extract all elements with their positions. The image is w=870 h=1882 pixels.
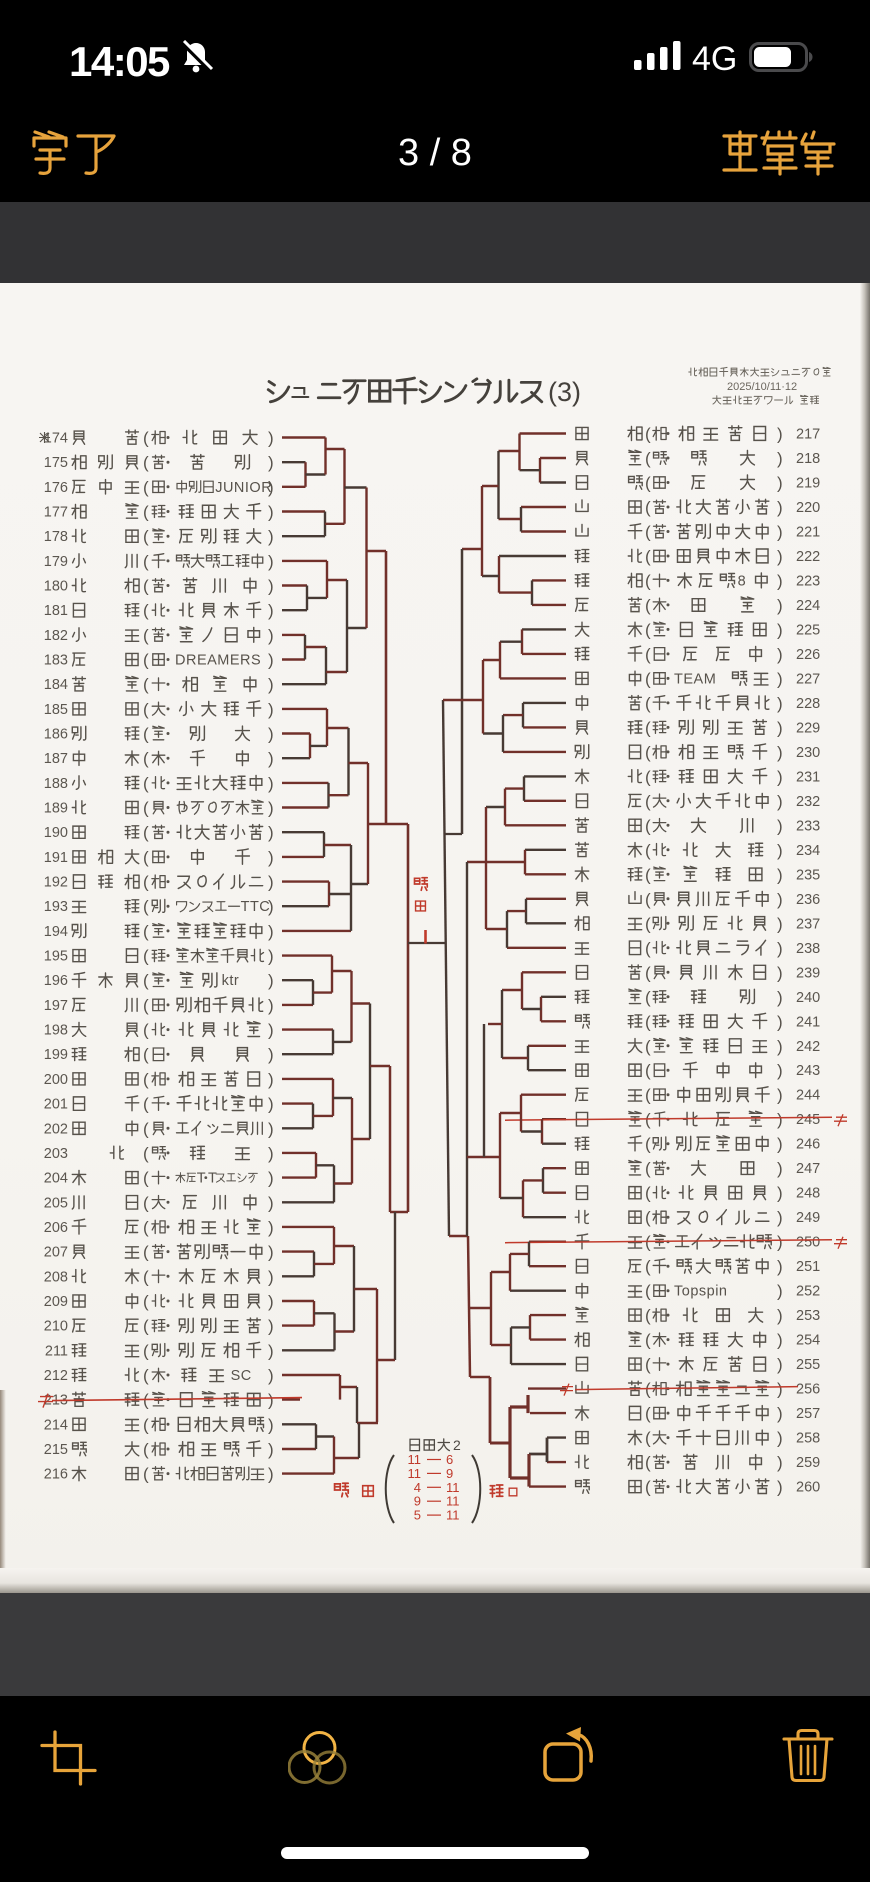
svg-text:(: ( [143,749,149,768]
svg-text:175: 175 [44,455,68,471]
svg-text:): ) [777,1086,783,1105]
svg-text:(: ( [645,914,651,933]
svg-text:): ) [777,1037,783,1056]
svg-text:174: 174 [44,431,68,447]
svg-text:(: ( [645,571,651,590]
svg-text:(: ( [143,1218,149,1237]
svg-text:238: 238 [796,941,820,957]
svg-text:ktr: ktr [222,973,240,989]
svg-text:198: 198 [44,1023,68,1039]
svg-text:11: 11 [446,1480,460,1495]
svg-text:(: ( [645,1037,651,1056]
svg-text:): ) [268,651,274,670]
svg-text:179: 179 [44,554,68,570]
svg-text:221: 221 [796,525,820,541]
svg-text:): ) [777,449,783,468]
svg-text:(: ( [143,922,149,941]
svg-text:): ) [268,1317,274,1336]
svg-text:): ) [777,1135,783,1154]
svg-text:231: 231 [796,769,820,785]
svg-text:(: ( [645,1012,651,1031]
svg-text:): ) [777,767,783,786]
svg-text:(: ( [143,429,149,448]
svg-text:T: T [197,1171,206,1187]
svg-text:(: ( [645,1355,651,1374]
svg-text:209: 209 [44,1294,68,1310]
svg-text:192: 192 [44,875,68,891]
svg-text:208: 208 [44,1269,68,1285]
svg-text:(: ( [143,1144,149,1163]
svg-text:(: ( [645,1184,651,1203]
svg-text:DREAMERS: DREAMERS [175,653,261,669]
svg-text:(: ( [143,552,149,571]
svg-text:): ) [777,865,783,884]
svg-text:): ) [777,743,783,762]
svg-text:): ) [268,626,274,645]
svg-text:226: 226 [796,647,820,663]
svg-text:(: ( [143,651,149,670]
svg-text:): ) [268,1193,274,1212]
svg-text:Topspin: Topspin [674,1284,727,1300]
svg-text:215: 215 [44,1442,68,1458]
svg-text:227: 227 [796,671,820,687]
svg-text:187: 187 [44,751,68,767]
svg-text:(: ( [645,620,651,639]
svg-text:): ) [268,1218,274,1237]
svg-text:243: 243 [796,1063,820,1079]
svg-text:): ) [268,749,274,768]
svg-text:(: ( [143,626,149,645]
svg-text:(: ( [645,1429,651,1448]
svg-text:(: ( [143,947,149,966]
svg-text:(: ( [143,1095,149,1114]
svg-text:(: ( [143,1465,149,1484]
svg-text:191: 191 [44,850,68,866]
svg-text:248: 248 [796,1186,820,1202]
svg-text:(: ( [645,1257,651,1276]
svg-text:(: ( [143,1267,149,1286]
svg-text:252: 252 [796,1284,820,1300]
svg-text:): ) [268,947,274,966]
svg-text:): ) [777,1478,783,1497]
svg-text:223: 223 [796,573,820,589]
svg-text:): ) [777,1184,783,1203]
svg-text:177: 177 [44,505,68,521]
svg-text:(: ( [143,601,149,620]
svg-text:(: ( [143,1119,149,1138]
svg-text:190: 190 [44,825,68,841]
svg-text:197: 197 [44,998,68,1014]
svg-text:): ) [777,571,783,590]
svg-text:195: 195 [44,949,68,965]
svg-text:245: 245 [796,1112,820,1128]
svg-text:(: ( [143,996,149,1015]
svg-text:): ) [777,1355,783,1374]
svg-text:5: 5 [414,1508,421,1523]
svg-text:(: ( [645,718,651,737]
svg-text:212: 212 [44,1368,68,1384]
svg-text:TTC: TTC [241,899,271,915]
svg-text:): ) [268,527,274,546]
svg-text:): ) [268,1391,274,1410]
svg-text:201: 201 [44,1097,68,1113]
svg-text:(: ( [645,498,651,517]
svg-text:): ) [268,1292,274,1311]
svg-text:250: 250 [796,1235,820,1251]
svg-text:): ) [777,939,783,958]
svg-text:): ) [777,474,783,493]
svg-text:(: ( [143,1070,149,1089]
svg-text:11: 11 [446,1494,460,1509]
svg-text:(: ( [143,897,149,916]
svg-text:): ) [268,996,274,1015]
svg-text:(: ( [645,1135,651,1154]
svg-text:205: 205 [44,1195,68,1211]
svg-text:228: 228 [796,696,820,712]
svg-text:8: 8 [738,573,747,589]
svg-text:): ) [268,922,274,941]
svg-text:): ) [268,725,274,744]
svg-text:2: 2 [453,1437,461,1453]
svg-text:200: 200 [44,1072,68,1088]
svg-text:(: ( [143,799,149,818]
svg-text:(: ( [645,816,651,835]
svg-text:): ) [777,425,783,444]
svg-text:(: ( [645,1159,651,1178]
svg-text:(: ( [645,1478,651,1497]
svg-text:): ) [777,1380,783,1399]
svg-text:9: 9 [446,1466,453,1481]
svg-text:): ) [777,1012,783,1031]
svg-text:232: 232 [796,794,820,810]
svg-text:241: 241 [796,1014,820,1030]
svg-text:): ) [268,848,274,867]
svg-text:222: 222 [796,549,820,565]
svg-text:): ) [268,1144,274,1163]
svg-text:(: ( [143,1021,149,1040]
svg-text:): ) [777,694,783,713]
svg-text:(: ( [143,1193,149,1212]
svg-text:): ) [268,1070,274,1089]
svg-text:(: ( [645,645,651,664]
svg-text:204: 204 [44,1171,68,1187]
svg-text:(: ( [143,1292,149,1311]
svg-text:202: 202 [44,1121,68,1137]
svg-text:(: ( [143,1341,149,1360]
svg-text:2025/10/11·12: 2025/10/11·12 [727,381,797,393]
svg-text:(: ( [143,453,149,472]
svg-text:): ) [268,1169,274,1188]
svg-text:(: ( [645,694,651,713]
svg-text:(: ( [143,700,149,719]
svg-text:): ) [268,601,274,620]
svg-text:(: ( [143,1415,149,1434]
svg-text:(: ( [645,1404,651,1423]
svg-text:210: 210 [44,1319,68,1335]
svg-text:): ) [777,1453,783,1472]
svg-text:182: 182 [44,628,68,644]
svg-text:(: ( [645,1282,651,1301]
svg-text:184: 184 [44,677,68,693]
svg-text:): ) [777,1331,783,1350]
svg-text:): ) [777,1061,783,1080]
svg-text:193: 193 [44,899,68,915]
svg-text:188: 188 [44,776,68,792]
svg-text:236: 236 [796,892,820,908]
svg-text:): ) [777,1233,783,1252]
svg-text:186: 186 [44,727,68,743]
svg-text:): ) [777,841,783,860]
svg-text:207: 207 [44,1245,68,1261]
svg-text:(: ( [645,939,651,958]
svg-text:189: 189 [44,801,68,817]
svg-text:): ) [777,620,783,639]
svg-text:): ) [777,1429,783,1448]
svg-text:(: ( [143,1317,149,1336]
svg-text:): ) [268,1119,274,1138]
svg-text:(: ( [143,1243,149,1262]
svg-text:): ) [777,498,783,517]
svg-text:): ) [777,596,783,615]
svg-text:): ) [268,577,274,596]
svg-text:(: ( [645,474,651,493]
svg-text:176: 176 [44,480,68,496]
svg-text:(: ( [645,523,651,542]
svg-text:(: ( [143,873,149,892]
svg-text:185: 185 [44,702,68,718]
svg-text:(: ( [645,1061,651,1080]
svg-text:6: 6 [446,1452,453,1467]
svg-text:): ) [777,669,783,688]
svg-text:(: ( [645,1208,651,1227]
svg-text:237: 237 [796,916,820,932]
svg-text:): ) [777,1306,783,1325]
svg-text:194: 194 [44,924,68,940]
svg-text:259: 259 [796,1455,820,1471]
svg-text:217: 217 [796,427,820,443]
svg-text:(: ( [645,963,651,982]
svg-text:SC: SC [231,1368,252,1384]
svg-text:257: 257 [796,1406,820,1422]
svg-text:(: ( [645,1453,651,1472]
svg-text:258: 258 [796,1431,820,1447]
svg-text:): ) [777,1404,783,1423]
svg-text:): ) [268,1267,274,1286]
svg-text:): ) [268,1440,274,1459]
svg-text:253: 253 [796,1308,820,1324]
svg-text:229: 229 [796,720,820,736]
svg-text:218: 218 [796,451,820,467]
svg-text:230: 230 [796,745,820,761]
svg-text:): ) [777,816,783,835]
svg-text:(: ( [143,774,149,793]
svg-text:(: ( [143,577,149,596]
svg-text:224: 224 [796,598,820,614]
svg-text:): ) [268,799,274,818]
svg-text:249: 249 [796,1210,820,1226]
svg-text:181: 181 [44,603,68,619]
svg-text:(: ( [143,1440,149,1459]
svg-text:216: 216 [44,1467,68,1483]
svg-text:(: ( [143,1366,149,1385]
svg-text:206: 206 [44,1220,68,1236]
svg-text:(: ( [645,792,651,811]
svg-text:(: ( [143,823,149,842]
svg-text:): ) [268,774,274,793]
svg-text:220: 220 [796,500,820,516]
svg-text:11: 11 [408,1466,422,1481]
svg-text:): ) [268,1415,274,1434]
svg-text:): ) [268,823,274,842]
svg-text:(: ( [645,988,651,1007]
svg-text:(: ( [143,1169,149,1188]
svg-text:(: ( [143,725,149,744]
svg-text:): ) [777,1110,783,1129]
svg-text:): ) [268,971,274,990]
svg-text:): ) [777,792,783,811]
svg-text:(: ( [645,1306,651,1325]
svg-text:): ) [268,1095,274,1114]
svg-text:219: 219 [796,476,820,492]
svg-text:JUNIOR: JUNIOR [215,480,272,496]
svg-text:(: ( [143,848,149,867]
svg-text:(: ( [143,1045,149,1064]
svg-text:4: 4 [414,1480,421,1495]
svg-text:(: ( [645,743,651,762]
svg-text:(: ( [645,425,651,444]
svg-text:(: ( [143,971,149,990]
svg-text:260: 260 [796,1480,820,1496]
svg-text:235: 235 [796,867,820,883]
svg-text:TEAM: TEAM [674,671,716,687]
svg-text:(3): (3) [548,377,581,407]
svg-text:): ) [777,890,783,909]
svg-text:): ) [268,1021,274,1040]
svg-text:): ) [777,1282,783,1301]
svg-text:(: ( [645,596,651,615]
svg-text:246: 246 [796,1137,820,1153]
svg-text:(: ( [645,841,651,860]
svg-text:203: 203 [44,1146,68,1162]
svg-text:256: 256 [796,1382,820,1398]
svg-text:): ) [777,547,783,566]
svg-text:244: 244 [796,1088,820,1104]
svg-text:): ) [777,1257,783,1276]
svg-text:): ) [777,1159,783,1178]
svg-text:): ) [268,1366,274,1385]
svg-text:251: 251 [796,1259,820,1275]
svg-text:234: 234 [796,843,820,859]
svg-text:): ) [268,429,274,448]
svg-text:211: 211 [45,1343,68,1359]
svg-text:199: 199 [44,1047,68,1063]
svg-text:(: ( [645,1086,651,1105]
svg-text:): ) [777,718,783,737]
svg-text:242: 242 [796,1039,820,1055]
svg-text:11: 11 [446,1508,460,1523]
svg-text:): ) [777,963,783,982]
svg-text:): ) [268,453,274,472]
svg-text:): ) [777,523,783,542]
svg-text:): ) [268,1341,274,1360]
svg-text:): ) [268,1045,274,1064]
svg-text:): ) [268,873,274,892]
svg-text:(: ( [143,675,149,694]
svg-text:240: 240 [796,990,820,1006]
svg-text:(: ( [645,767,651,786]
svg-text:183: 183 [44,653,68,669]
svg-text:): ) [268,1243,274,1262]
svg-text:(: ( [645,547,651,566]
svg-text:254: 254 [796,1333,820,1349]
svg-text:(: ( [143,527,149,546]
svg-text:11: 11 [408,1452,422,1467]
svg-text:(: ( [645,669,651,688]
svg-text:): ) [268,700,274,719]
svg-text:255: 255 [796,1357,820,1373]
svg-text:): ) [268,552,274,571]
svg-text:196: 196 [44,973,68,989]
svg-text:(: ( [645,865,651,884]
svg-text:(: ( [143,478,149,497]
svg-text:(: ( [645,449,651,468]
svg-text:): ) [777,1208,783,1227]
svg-text:): ) [268,503,274,522]
svg-text:239: 239 [796,965,820,981]
svg-text:(: ( [645,890,651,909]
svg-text:): ) [777,645,783,664]
svg-text:214: 214 [44,1417,68,1433]
svg-text:): ) [777,988,783,1007]
svg-text:(: ( [645,1331,651,1350]
svg-text:233: 233 [796,818,820,834]
svg-text:(: ( [645,1233,651,1252]
svg-text:T: T [208,1171,217,1187]
svg-text:247: 247 [796,1161,820,1177]
svg-text:225: 225 [796,622,820,638]
svg-text:): ) [777,914,783,933]
svg-text:): ) [268,675,274,694]
svg-text:(: ( [645,1110,651,1129]
svg-text:(: ( [143,503,149,522]
svg-text:): ) [268,1465,274,1484]
svg-text:9: 9 [414,1494,421,1509]
svg-text:180: 180 [44,579,68,595]
svg-text:178: 178 [44,529,68,545]
